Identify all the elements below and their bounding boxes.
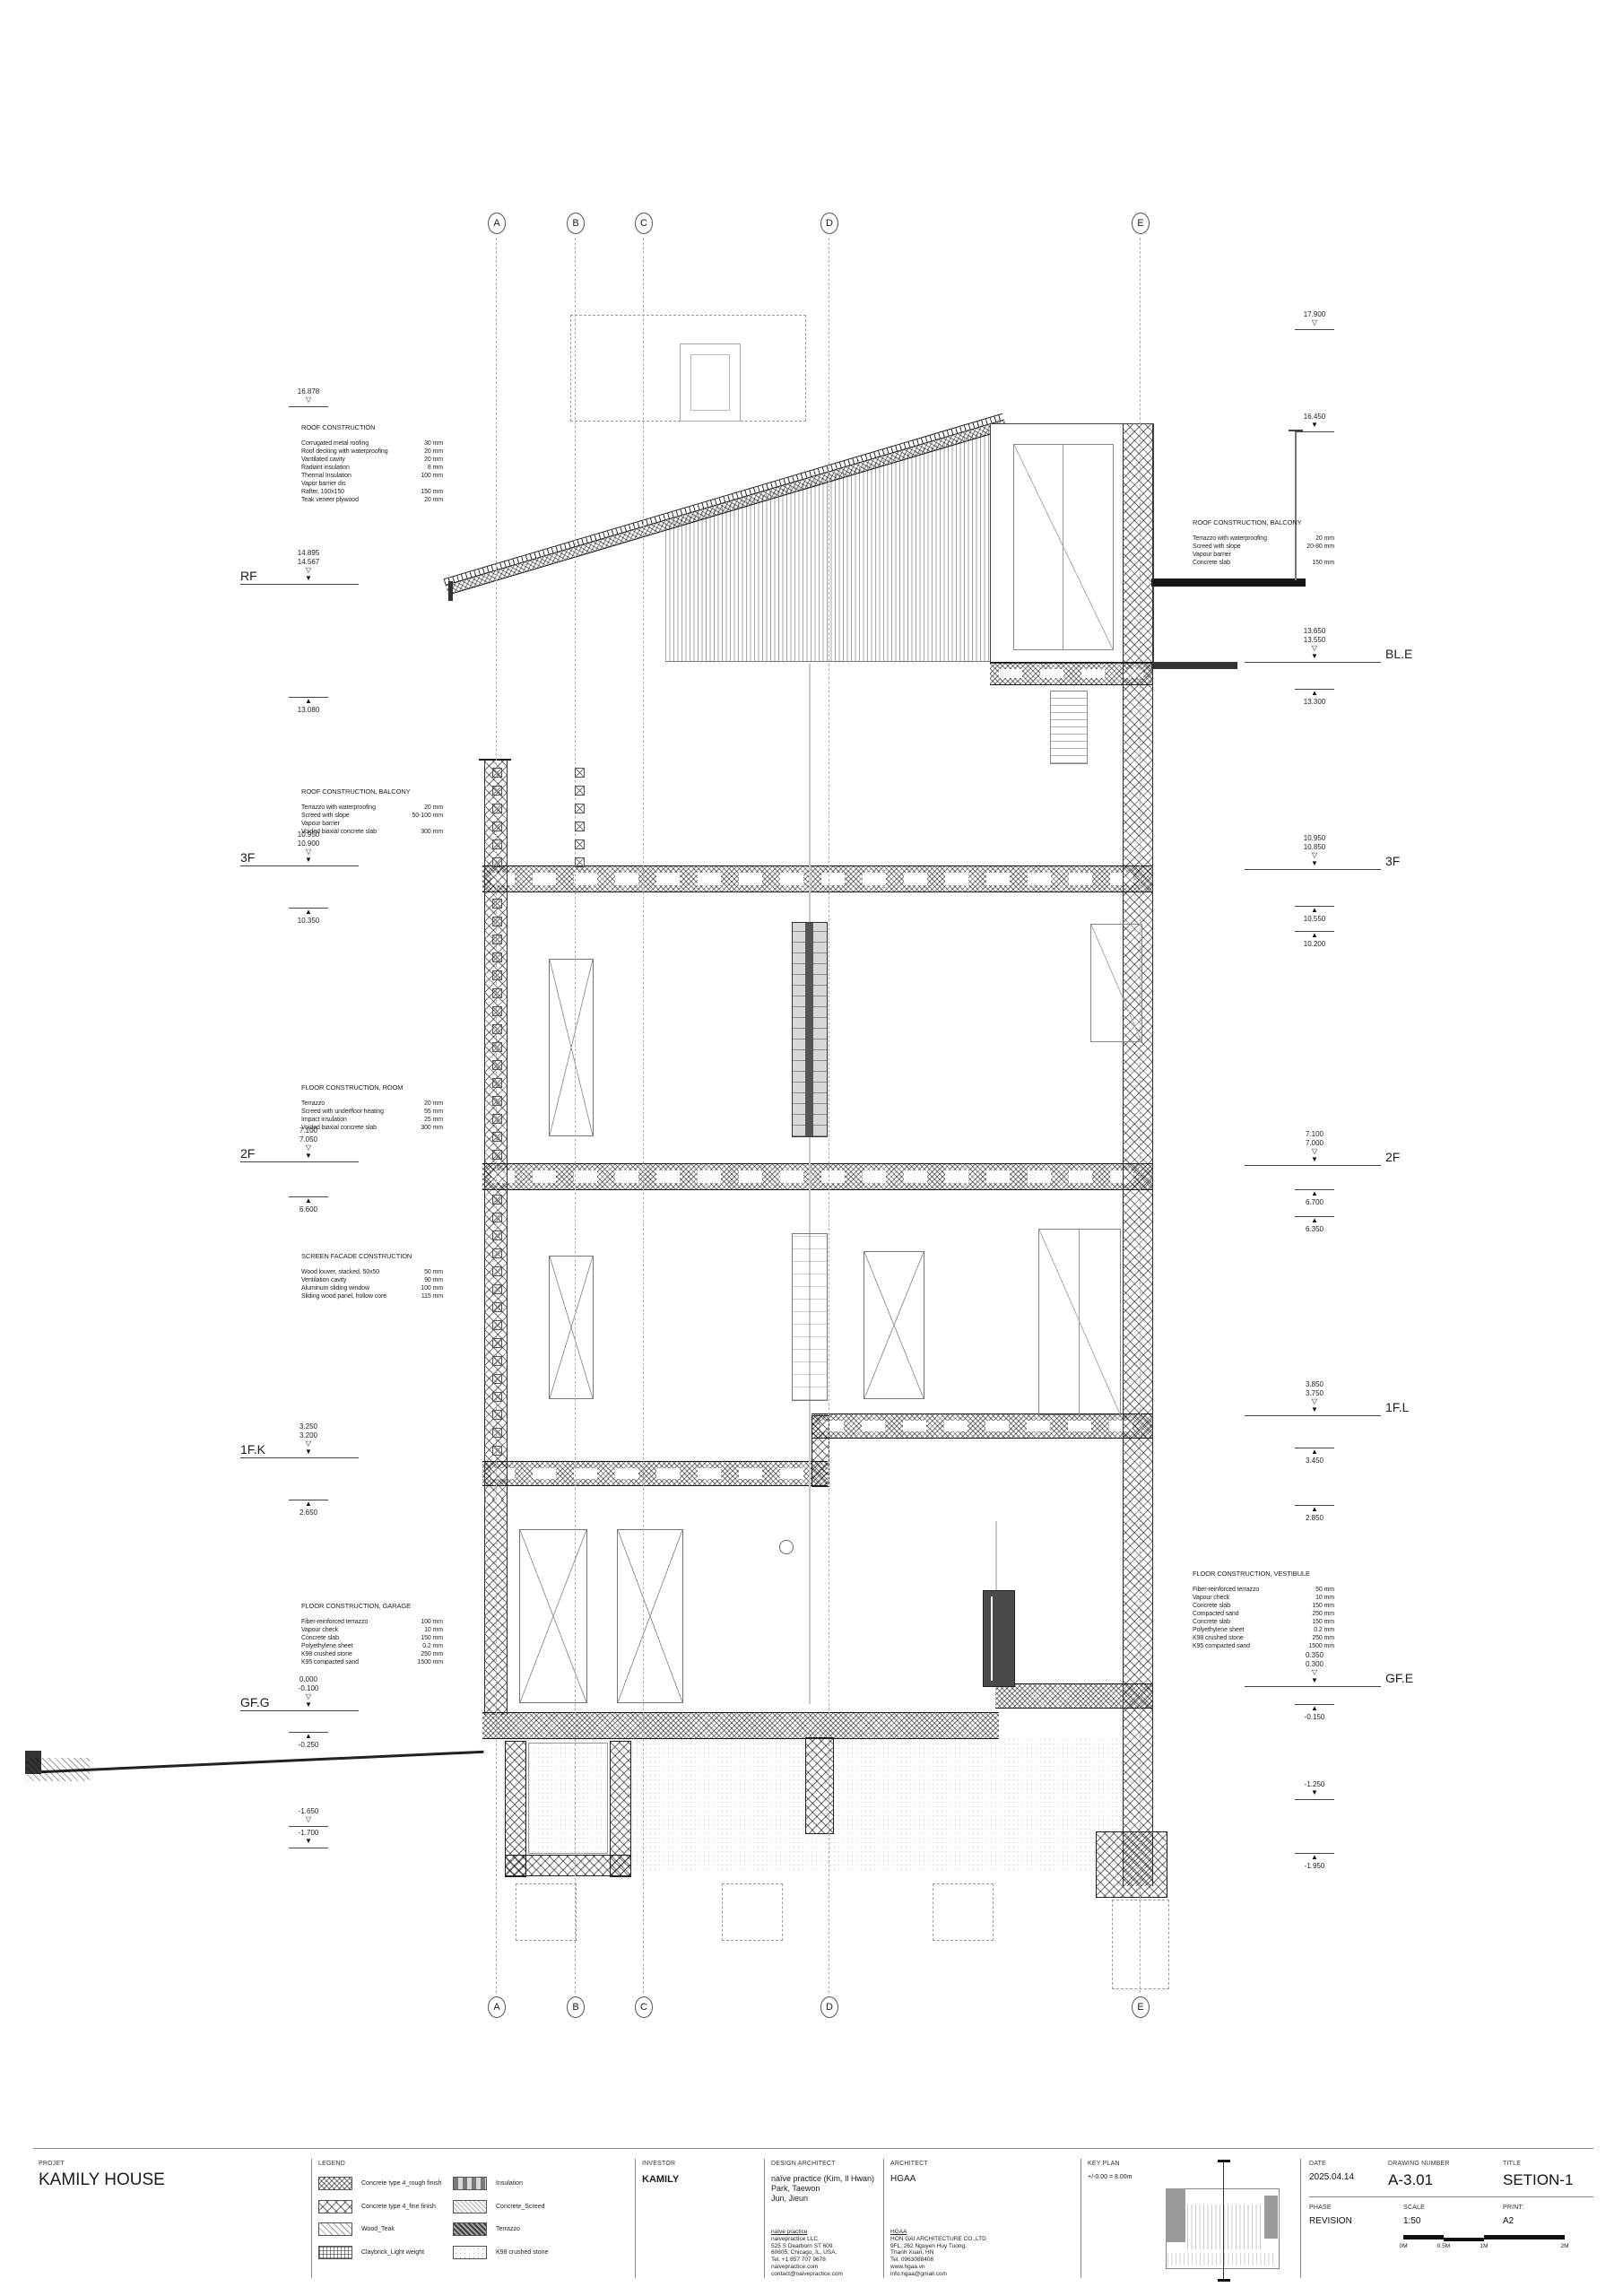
louver-block: [492, 1302, 502, 1312]
level-line--1.700: [289, 1848, 328, 1848]
window-2f-right: [1038, 1229, 1121, 1415]
louver-block: [492, 1096, 502, 1106]
note-item: Concrete slab150 mm: [1193, 559, 1334, 567]
roof-eave-fascia: [448, 581, 453, 601]
ground-hatch: [27, 1758, 90, 1781]
level-value-16.450: 16.450: [1279, 413, 1350, 421]
note-item: Concrete slab150 mm: [1193, 1618, 1334, 1626]
legend-text: Concrete type 4_rough finish: [361, 2180, 442, 2187]
level-tri--1.250: ▼: [1306, 1789, 1324, 1796]
louver-block: [492, 839, 502, 849]
level-value-GF.E: 0.300: [1279, 1660, 1350, 1668]
note-block: ROOF CONSTRUCTION, BALCONYTerrazzo with …: [301, 787, 443, 836]
level-line-17.900: [1295, 329, 1334, 330]
louver-block: [492, 768, 502, 778]
louver-block: [492, 899, 502, 909]
keyplan-datum: +/-0.00 = 8.00m: [1088, 2174, 1132, 2180]
note-item: Screed with slope50-100 mm: [301, 812, 443, 820]
level-line-16.878: [289, 406, 328, 407]
legend-swatch: [453, 2177, 487, 2190]
window-3f-left: [549, 959, 594, 1136]
level-value-BL.E: 13.650: [1279, 627, 1350, 635]
scale-bar: 0M0.5M1M2M: [1403, 2235, 1565, 2251]
level-label-BL.E: BL.E: [1385, 647, 1412, 661]
louver-block: [492, 1284, 502, 1294]
light-fixture-circle: [779, 1540, 794, 1554]
level-value-GF.E: 0.350: [1279, 1651, 1350, 1659]
note-title: SCREEN FACADE CONSTRUCTION: [301, 1252, 443, 1260]
slab-1fk: [482, 1461, 828, 1486]
door-3f-right: [1090, 924, 1142, 1042]
tower-window-mullion: [1063, 445, 1063, 649]
louver-block: [492, 1248, 502, 1258]
level-value--0.250: -0.250: [273, 1741, 344, 1749]
louver-block: [575, 768, 585, 778]
louver-block: [492, 1006, 502, 1016]
level-value-3F: 10.850: [1279, 843, 1350, 851]
legend-text: Concrete_Screed: [496, 2204, 544, 2210]
vestibule-door: [983, 1590, 1015, 1687]
level-tri-up--0.250: ▲: [299, 1733, 317, 1740]
note-item: Aluminum sliding window100 mm: [301, 1284, 443, 1292]
level-tri-open-2F: ▽: [1306, 1148, 1324, 1155]
louver-block: [575, 857, 585, 867]
level-tri-filled-1F.K: ▼: [299, 1448, 317, 1456]
level-tri--1.700: ▼: [299, 1838, 317, 1845]
garage-door-leaf-2: [617, 1529, 683, 1703]
level-line-1F.K: [240, 1457, 359, 1458]
level-value-16.878: 16.878: [273, 387, 344, 396]
louver-block: [492, 857, 502, 867]
slab-gf-garage: [482, 1712, 999, 1739]
note-item: Fiber-reinforced terrazzo50 mm: [1193, 1586, 1334, 1594]
level-tri-17.900: ▽: [1306, 319, 1324, 326]
note-item: K98 crushed stone250 mm: [1193, 1634, 1334, 1642]
level-tri-open-3F: ▽: [299, 848, 317, 856]
louver-block: [492, 952, 502, 962]
note-item: Wood louver, stacked, 50x5050 mm: [301, 1268, 443, 1276]
legend-label: LEGEND: [318, 2161, 345, 2167]
grid-bubble-B: B: [567, 213, 585, 234]
investor-name: KAMILY: [642, 2174, 679, 2185]
grid-bubble-A: A: [488, 213, 506, 234]
legend-swatch: [453, 2222, 487, 2236]
note-item: Compacted sand250 mm: [1193, 1610, 1334, 1618]
level-value--1.700: -1.700: [273, 1829, 344, 1837]
level-tri-16.878: ▽: [299, 396, 317, 404]
garage-door-leaf-1: [519, 1529, 587, 1703]
level-value-6.350: 6.350: [1279, 1225, 1350, 1233]
legend-swatch: [318, 2200, 352, 2213]
legend-swatch: [318, 2222, 352, 2236]
pile-cap-east: [1112, 1900, 1169, 1989]
level-value-BL.E: 13.550: [1279, 636, 1350, 644]
level-label-3F: 3F: [1385, 854, 1400, 868]
legend-item: Insulation: [453, 2177, 523, 2190]
level-line-GF.E: [1245, 1686, 1381, 1687]
level-tri-filled-1F.L: ▼: [1306, 1406, 1324, 1413]
date-label: DATE: [1309, 2161, 1326, 2167]
level-value-3F: 10.950: [1279, 834, 1350, 842]
legend-item: Concrete type 4_fine finish: [318, 2200, 436, 2213]
level-label-2F: 2F: [240, 1146, 255, 1161]
note-item: Sliding wood panel, hollow core115 mm: [301, 1292, 443, 1300]
note-item: Vapour check10 mm: [301, 1626, 443, 1634]
sheet-title-value: SETION-1: [1503, 2171, 1573, 2189]
louver-block: [492, 1338, 502, 1348]
level-line--1.250: [1295, 1799, 1334, 1800]
grid-bubble-A: A: [488, 1996, 506, 2018]
level-value-2.850: 2.850: [1279, 1514, 1350, 1522]
louver-block: [575, 822, 585, 831]
level-value-17.900: 17.900: [1279, 310, 1350, 318]
louver-block: [492, 1132, 502, 1142]
louver-block: [492, 1231, 502, 1240]
level-line-2F: [1245, 1165, 1381, 1166]
level-line-16.450: [1295, 431, 1334, 432]
note-item: K98 crushed stone250 mm: [301, 1650, 443, 1658]
legend-text: Wood_Teak: [361, 2226, 395, 2232]
legend-item: Concrete_Screed: [453, 2200, 544, 2213]
grid-bubble-E: E: [1132, 213, 1150, 234]
louver-block: [492, 1150, 502, 1160]
drawing-number-label: DRAWING NUMBER: [1388, 2161, 1450, 2167]
level-line-3F: [240, 865, 359, 866]
print-value: A2: [1503, 2216, 1514, 2226]
note-item: Vantilated cavity20 mm: [301, 456, 443, 464]
footing-stub-d: [805, 1737, 834, 1834]
legend-text: K98 crushed stone: [496, 2249, 548, 2256]
east-balcony-roof: [1151, 578, 1306, 587]
architect-name: HGAA: [890, 2174, 916, 2184]
legend-item: Terrazzo: [453, 2222, 520, 2236]
grid-bubble-D: D: [820, 213, 838, 234]
scalebar-label: 0M: [1393, 2243, 1414, 2249]
level-value-13.080: 13.080: [273, 706, 344, 714]
level-value-6.700: 6.700: [1279, 1198, 1350, 1206]
note-item: Polyethylene sheet0.2 mm: [1193, 1626, 1334, 1634]
level-value-3F: 10.900: [273, 839, 344, 848]
louver-block: [492, 1320, 502, 1330]
west-parapet-cap: [479, 759, 511, 761]
level-value-2F: 7.050: [273, 1135, 344, 1144]
architect-address: HGAAHON GAI ARCHITECTURE CO.,LTD9FL, 262…: [890, 2229, 986, 2278]
grid-bubble-C: C: [635, 1996, 653, 2018]
note-item: Polyethylene sheet0.2 mm: [301, 1642, 443, 1650]
footing-east: [1096, 1831, 1167, 1898]
scalebar-label: 1M: [1473, 2243, 1495, 2249]
level-tri-up-10.550: ▲: [1306, 907, 1324, 914]
phase-label: PHASE: [1309, 2205, 1332, 2211]
legend-swatch: [453, 2246, 487, 2259]
project-name: KAMILY HOUSE: [39, 2170, 165, 2190]
grid-line-E: [1140, 238, 1141, 1993]
level-line--1.650: [289, 1826, 328, 1827]
level-value-10.550: 10.550: [1279, 915, 1350, 923]
note-title: ROOF CONSTRUCTION: [301, 423, 443, 431]
east-balcony-floor: [1151, 662, 1237, 669]
level-value-1F.K: 3.200: [273, 1431, 344, 1439]
note-item: Screed with slope20-80 mm: [1193, 543, 1334, 551]
keyplan-drawing: [1157, 2160, 1291, 2285]
slab-3f: [482, 865, 1152, 892]
louver-block: [492, 1410, 502, 1420]
pile-cap-3: [933, 1883, 994, 1941]
note-item: Terrazzo with waterproofing20 mm: [1193, 535, 1334, 543]
level-value-13.300: 13.300: [1279, 698, 1350, 706]
level-value-1F.K: 3.250: [273, 1422, 344, 1431]
level-tri-filled-RF: ▼: [299, 575, 317, 582]
level-tri-up-10.350: ▲: [299, 909, 317, 916]
louver-block: [492, 935, 502, 944]
grid-bubble-D: D: [820, 1996, 838, 2018]
louver-block: [492, 1446, 502, 1456]
ground-line: [25, 1751, 484, 1774]
louver-block: [492, 1266, 502, 1276]
legend-text: Insulation: [496, 2180, 523, 2187]
level-value-1F.L: 3.750: [1279, 1389, 1350, 1397]
beyond-window-inner: [690, 354, 730, 411]
level-tri-open-2F: ▽: [299, 1144, 317, 1152]
level-tri-filled-3F: ▼: [299, 857, 317, 864]
louver-block: [492, 1195, 502, 1205]
level-line-1F.L: [1245, 1415, 1381, 1416]
pile-cap-1: [516, 1883, 577, 1941]
louver-block: [575, 804, 585, 813]
louver-block: [575, 786, 585, 796]
note-item: Vapour barrier: [301, 820, 443, 828]
note-item: Vapor barrier dis: [301, 480, 443, 488]
note-item: Fiber-reinforced terrazzo100 mm: [301, 1618, 443, 1626]
level-value-6.600: 6.600: [273, 1205, 344, 1213]
level-tri-open-RF: ▽: [299, 567, 317, 574]
grid-line-D: [829, 238, 829, 1993]
design-architect-address: naïve practicenaivepractice LLC525 S Dea…: [771, 2229, 843, 2278]
level-tri-up-6.350: ▲: [1306, 1217, 1324, 1224]
slab-1fl: [811, 1413, 1152, 1439]
slab-2f: [482, 1163, 1152, 1190]
level-label-2F: 2F: [1385, 1150, 1400, 1164]
wall-east: [1123, 424, 1153, 1886]
note-title: ROOF CONSTRUCTION, BALCONY: [1193, 518, 1334, 526]
phase-value: REVISION: [1309, 2216, 1352, 2226]
scale-value: 1:50: [1403, 2216, 1420, 2226]
architect-label: ARCHITECT: [890, 2161, 928, 2167]
shaft-cabinet-2f: [792, 1233, 828, 1401]
level-value-RF: 14.567: [273, 558, 344, 566]
investor-label: INVESTOR: [642, 2161, 675, 2167]
level-line-BL.E: [1245, 662, 1381, 663]
level-value--1.250: -1.250: [1279, 1780, 1350, 1788]
grid-bubble-E: E: [1132, 1996, 1150, 2018]
note-block: FLOOR CONSTRUCTION, VESTIBULEFiber-reinf…: [1193, 1570, 1334, 1650]
sheet-title-label: TITLE: [1503, 2161, 1521, 2167]
louver-block: [492, 970, 502, 980]
louver-block: [492, 1024, 502, 1034]
note-item: Voided biaxial concrete slab300 mm: [301, 1124, 443, 1132]
note-title: FLOOR CONSTRUCTION, GARAGE: [301, 1602, 443, 1610]
note-item: Terrazzo20 mm: [301, 1100, 443, 1108]
legend-swatch: [318, 2246, 352, 2259]
legend-text: Terrazzo: [496, 2226, 520, 2232]
level-value--1.950: -1.950: [1279, 1862, 1350, 1870]
note-item: Teak veneer plywood20 mm: [301, 496, 443, 504]
project-label: PROJET: [39, 2161, 65, 2167]
print-label: PRINT:: [1503, 2205, 1523, 2211]
level-value-1F.L: 3.850: [1279, 1380, 1350, 1388]
scalebar-label: 2M: [1554, 2243, 1575, 2249]
level-tri-filled-BL.E: ▼: [1306, 653, 1324, 660]
level-value-3.450: 3.450: [1279, 1457, 1350, 1465]
note-block: FLOOR CONSTRUCTION, ROOMTerrazzo20 mmScr…: [301, 1083, 443, 1132]
level-tri-up-3.450: ▲: [1306, 1448, 1324, 1456]
note-item: Vapour check10 mm: [1193, 1594, 1334, 1602]
scale-label: SCALE: [1403, 2205, 1425, 2211]
louver-block: [492, 1374, 502, 1384]
note-block: ROOF CONSTRUCTIONCorrugated metal roofin…: [301, 423, 443, 504]
level-tri-up--1.950: ▲: [1306, 1854, 1324, 1861]
level-label-1F.K: 1F.K: [240, 1442, 265, 1457]
level-value-RF: 14.895: [273, 549, 344, 557]
note-item: Voided biaxial concrete slab300 mm: [301, 828, 443, 836]
louver-block: [492, 1428, 502, 1438]
window-2f-mid: [864, 1251, 924, 1399]
louver-block: [492, 804, 502, 813]
note-item: Radiant insulation8 mm: [301, 464, 443, 472]
note-item: Vapour barrier: [1193, 551, 1334, 559]
shaft-cabinet-3f: [792, 922, 828, 1137]
level-tri-open-1F.K: ▽: [299, 1440, 317, 1448]
louver-block: [492, 822, 502, 831]
level-tri-up-2.850: ▲: [1306, 1506, 1324, 1513]
level-tri-up-6.700: ▲: [1306, 1190, 1324, 1197]
level-tri-up-13.080: ▲: [299, 698, 317, 705]
level-value-2.650: 2.650: [273, 1509, 344, 1517]
note-block: ROOF CONSTRUCTION, BALCONYTerrazzo with …: [1193, 518, 1334, 567]
level-line-RF: [240, 584, 359, 585]
pit-inner: [528, 1743, 608, 1854]
louver-block: [492, 1060, 502, 1070]
interior-wall-line: [809, 664, 811, 1704]
note-item: Terrazzo with waterproofing20 mm: [301, 804, 443, 812]
note-item: Thermal Insulation100 mm: [301, 472, 443, 480]
note-title: ROOF CONSTRUCTION, BALCONY: [301, 787, 443, 796]
level-value--0.150: -0.150: [1279, 1713, 1350, 1721]
design-architect-label: DESIGN ARCHITECT: [771, 2161, 836, 2167]
level-label-1F.L: 1F.L: [1385, 1400, 1409, 1414]
drawing-number-value: A-3.01: [1388, 2171, 1433, 2189]
note-item: Impact insulation25 mm: [301, 1116, 443, 1124]
level-value-10.200: 10.200: [1279, 940, 1350, 948]
note-item: Screed with underfloor heating55 mm: [301, 1108, 443, 1116]
louver-block: [492, 988, 502, 998]
level-label-GF.G: GF.G: [240, 1695, 270, 1709]
louver-block: [492, 1356, 502, 1366]
louver-block: [492, 1114, 502, 1124]
shelf-stack: [1050, 691, 1088, 764]
note-block: SCREEN FACADE CONSTRUCTIONWood louver, s…: [301, 1252, 443, 1300]
scalebar-label: 0.5M: [1433, 2243, 1454, 2249]
level-value-GF.G: 0.000: [273, 1675, 344, 1683]
level-label-RF: RF: [240, 569, 257, 583]
level-tri--1.650: ▽: [299, 1816, 317, 1823]
level-tri-filled-GF.E: ▼: [1306, 1677, 1324, 1684]
note-item: K95 compacted sand1500 mm: [301, 1658, 443, 1666]
louver-block: [492, 1078, 502, 1088]
level-tri-filled-GF.G: ▼: [299, 1701, 317, 1709]
louver-block: [492, 1392, 502, 1402]
tower-window: [1013, 444, 1114, 650]
level-tri-open-BL.E: ▽: [1306, 645, 1324, 652]
note-item: Ventilation cavity90 mm: [301, 1276, 443, 1284]
legend-swatch: [453, 2200, 487, 2213]
legend-item: Claybrick_Light weight: [318, 2246, 424, 2259]
legend-item: Wood_Teak: [318, 2222, 395, 2236]
level-tri-16.450: ▼: [1306, 422, 1324, 429]
level-label-GF.E: GF.E: [1385, 1671, 1413, 1685]
legend-swatch: [318, 2177, 352, 2190]
design-architect-names: naïve practice (Kim, Il Hwan)Park, Taewo…: [771, 2174, 874, 2204]
grid-bubble-B: B: [567, 1996, 585, 2018]
legend-text: Concrete type 4_fine finish: [361, 2204, 436, 2210]
note-item: K95 compacted sand1500 mm: [1193, 1642, 1334, 1650]
level-value-10.350: 10.350: [273, 917, 344, 925]
level-tri-up-2.650: ▲: [299, 1500, 317, 1508]
keyplan-section-line: [1223, 2161, 1224, 2280]
level-line-2F: [240, 1161, 359, 1162]
grid-line-B: [575, 238, 576, 1993]
note-item: Rafter, 100x150150 mm: [301, 488, 443, 496]
legend-item: K98 crushed stone: [453, 2246, 548, 2259]
keyplan-label: KEY PLAN: [1088, 2161, 1120, 2167]
note-item: Roof decking with waterproofing20 mm: [301, 448, 443, 456]
legend-item: Concrete type 4_rough finish: [318, 2177, 442, 2190]
pile-cap-2: [722, 1883, 783, 1941]
level-tri-up-13.300: ▲: [1306, 690, 1324, 697]
level-tri-open-3F: ▽: [1306, 852, 1324, 859]
level-line-GF.G: [240, 1710, 359, 1711]
pit-base: [505, 1855, 631, 1876]
drawing-sheet: AABBCCDDEE16.878▽RF14.89514.567▽▼▲13.080…: [0, 0, 1623, 2296]
level-tri-filled-2F: ▼: [299, 1152, 317, 1160]
legend-text: Claybrick_Light weight: [361, 2249, 424, 2256]
louver-block: [492, 917, 502, 926]
level-label-3F: 3F: [240, 850, 255, 865]
level-tri-open-GF.G: ▽: [299, 1693, 317, 1700]
level-tri-open-1F.L: ▽: [1306, 1398, 1324, 1405]
level-line-3F: [1245, 869, 1381, 870]
window-2f-left: [549, 1256, 594, 1399]
note-item: Concrete slab150 mm: [1193, 1602, 1334, 1610]
level-tri-filled-3F: ▼: [1306, 860, 1324, 867]
date-value: 2025.04.14: [1309, 2172, 1354, 2182]
level-tri-up--0.150: ▲: [1306, 1705, 1324, 1712]
louver-block: [492, 1042, 502, 1052]
level-tri-up-6.600: ▲: [299, 1197, 317, 1205]
note-title: FLOOR CONSTRUCTION, VESTIBULE: [1193, 1570, 1334, 1578]
note-block: FLOOR CONSTRUCTION, GARAGEFiber-reinforc…: [301, 1602, 443, 1666]
note-item: Concrete slab150 mm: [301, 1634, 443, 1642]
level-value-2F: 7.000: [1279, 1139, 1350, 1147]
note-title: FLOOR CONSTRUCTION, ROOM: [301, 1083, 443, 1091]
level-value-2F: 7.100: [1279, 1130, 1350, 1138]
level-tri-up-10.200: ▲: [1306, 932, 1324, 939]
louver-block: [492, 1213, 502, 1222]
level-tri-open-GF.E: ▽: [1306, 1669, 1324, 1676]
level-tri-filled-2F: ▼: [1306, 1156, 1324, 1163]
louver-block: [492, 786, 502, 796]
grid-line-C: [643, 238, 644, 1993]
